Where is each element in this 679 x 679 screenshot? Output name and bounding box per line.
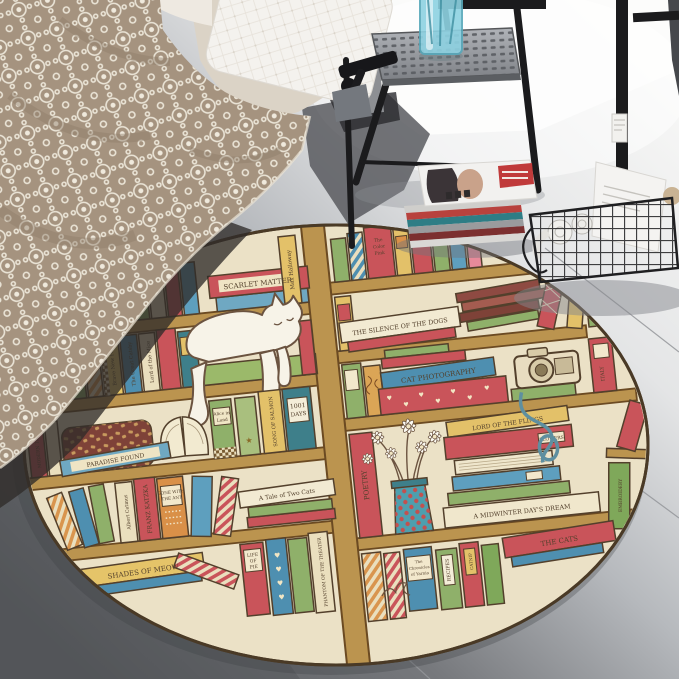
svg-text:♥: ♥ [274,551,281,560]
book-title: OF [250,558,257,565]
svg-text:♥: ♥ [278,593,285,602]
book-title: EMBROIDERY [618,478,624,512]
book-title: The [415,559,424,565]
book-title: Pink [374,250,385,257]
room-scene: SCARLET MATTER Max Halloway Brave New Po… [0,0,679,679]
book-title: PIE [249,564,258,571]
magazine-top-cover [418,160,537,206]
book-title: LIFE [247,552,259,559]
svg-text:♥: ♥ [386,395,392,403]
svg-text:♥: ♥ [484,385,490,393]
svg-text:♥: ♥ [435,398,441,406]
cover-photo-hair [427,168,459,203]
svg-text:♥: ♥ [467,394,473,402]
svg-text:♥: ♥ [275,565,282,574]
book-title: The [374,237,383,244]
svg-text:♥: ♥ [450,388,456,396]
svg-text:♥: ♥ [277,579,284,588]
blue-glass-bottle [419,0,463,61]
tag-label [612,114,627,142]
star-icon: ★ [245,436,253,446]
svg-text:♥: ♥ [418,392,424,400]
svg-text:♥: ♥ [403,401,409,409]
magazine-spines [404,198,526,248]
cover-masthead [498,163,534,188]
